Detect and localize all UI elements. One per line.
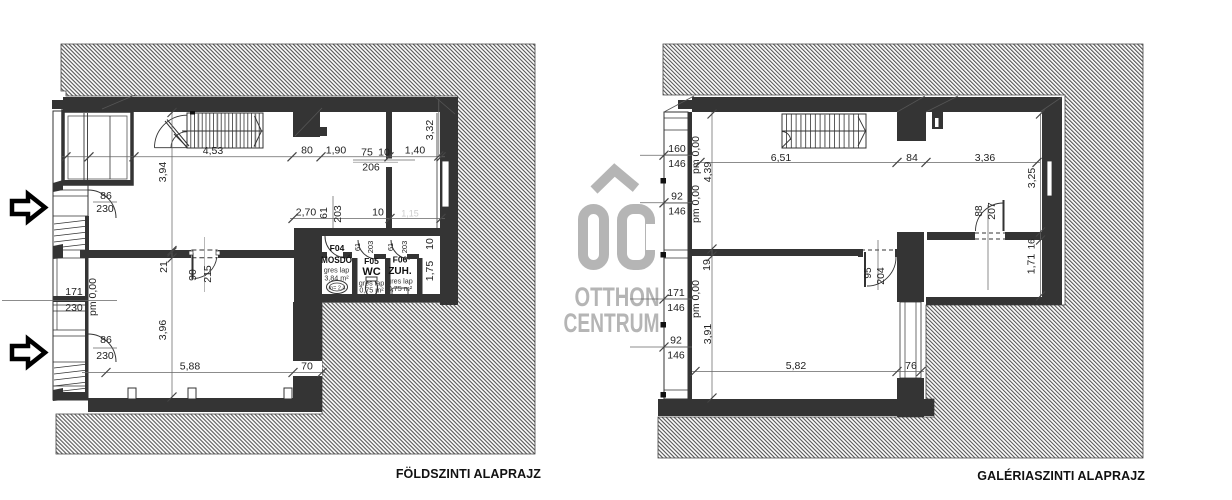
svg-text:pm 0,00: pm 0,00: [690, 280, 702, 318]
svg-text:3,94: 3,94: [157, 162, 169, 183]
svg-text:206: 206: [362, 162, 380, 174]
svg-text:3,96: 3,96: [157, 320, 169, 341]
svg-text:pm 0,00: pm 0,00: [690, 185, 702, 223]
svg-text:2,70: 2,70: [296, 207, 317, 219]
svg-text:GALÉRIASZINTI ALAPRAJZ: GALÉRIASZINTI ALAPRAJZ: [977, 468, 1145, 483]
svg-text:1,90: 1,90: [326, 145, 347, 157]
svg-text:ZUH.: ZUH.: [388, 266, 412, 277]
svg-text:203: 203: [366, 241, 375, 254]
svg-text:207: 207: [986, 202, 998, 220]
svg-text:61: 61: [386, 243, 395, 251]
svg-text:1,15: 1,15: [401, 209, 419, 219]
svg-text:146: 146: [667, 302, 685, 314]
svg-text:0,75 m²: 0,75 m²: [359, 286, 384, 295]
svg-text:MOSDÓ: MOSDÓ: [321, 254, 352, 266]
svg-text:pm 0,00: pm 0,00: [690, 136, 702, 174]
svg-text:CENTRUM: CENTRUM: [564, 308, 660, 338]
svg-text:215: 215: [202, 265, 214, 283]
svg-text:80: 80: [301, 145, 313, 157]
svg-text:1,40: 1,40: [405, 145, 426, 157]
svg-text:WC: WC: [362, 266, 380, 278]
svg-text:16: 16: [1027, 239, 1038, 250]
svg-text:21: 21: [158, 261, 170, 273]
svg-text:10: 10: [372, 207, 384, 219]
svg-text:203: 203: [332, 205, 344, 223]
svg-text:m= 2,4: m= 2,4: [329, 286, 346, 292]
svg-text:171: 171: [65, 286, 83, 298]
svg-text:6,51: 6,51: [771, 152, 792, 164]
svg-text:146: 146: [667, 350, 685, 362]
svg-text:1,75: 1,75: [424, 261, 436, 282]
svg-text:F06: F06: [393, 255, 408, 265]
svg-text:61: 61: [318, 207, 330, 219]
svg-text:92: 92: [670, 335, 682, 347]
svg-text:1,71: 1,71: [1026, 254, 1038, 275]
svg-text:5,82: 5,82: [786, 360, 807, 372]
svg-text:92: 92: [671, 191, 683, 203]
svg-text:10: 10: [424, 238, 436, 250]
svg-text:204: 204: [875, 267, 887, 285]
svg-text:19: 19: [701, 259, 713, 271]
svg-text:3,25: 3,25: [1026, 168, 1038, 189]
svg-text:F05: F05: [364, 256, 379, 266]
svg-text:171: 171: [667, 287, 685, 299]
svg-text:4,53: 4,53: [203, 145, 224, 157]
svg-text:95: 95: [863, 267, 874, 279]
svg-text:3,91: 3,91: [702, 324, 714, 345]
svg-text:3,36: 3,36: [975, 152, 996, 164]
svg-text:146: 146: [668, 158, 686, 170]
svg-text:84: 84: [906, 152, 918, 164]
svg-text:F04: F04: [330, 243, 345, 253]
svg-text:76: 76: [905, 360, 917, 372]
svg-text:61: 61: [353, 243, 362, 251]
svg-text:3,32: 3,32: [424, 120, 436, 141]
svg-text:10: 10: [378, 147, 390, 159]
svg-text:FÖLDSZINTI ALAPRAJZ: FÖLDSZINTI ALAPRAJZ: [396, 466, 541, 481]
svg-text:230: 230: [96, 350, 114, 362]
svg-text:203: 203: [400, 241, 409, 254]
svg-text:88: 88: [974, 205, 985, 217]
svg-text:160: 160: [668, 143, 686, 155]
svg-text:146: 146: [668, 206, 686, 218]
svg-text:86: 86: [100, 190, 112, 202]
svg-text:86: 86: [100, 334, 112, 346]
svg-text:90: 90: [187, 269, 199, 281]
svg-text:4,39: 4,39: [702, 162, 714, 183]
svg-text:230: 230: [96, 203, 114, 215]
svg-text:pm 0,00: pm 0,00: [87, 278, 99, 316]
svg-text:75: 75: [361, 147, 373, 159]
svg-text:70: 70: [301, 361, 313, 373]
svg-text:230: 230: [65, 302, 83, 314]
svg-text:5,88: 5,88: [180, 361, 201, 373]
